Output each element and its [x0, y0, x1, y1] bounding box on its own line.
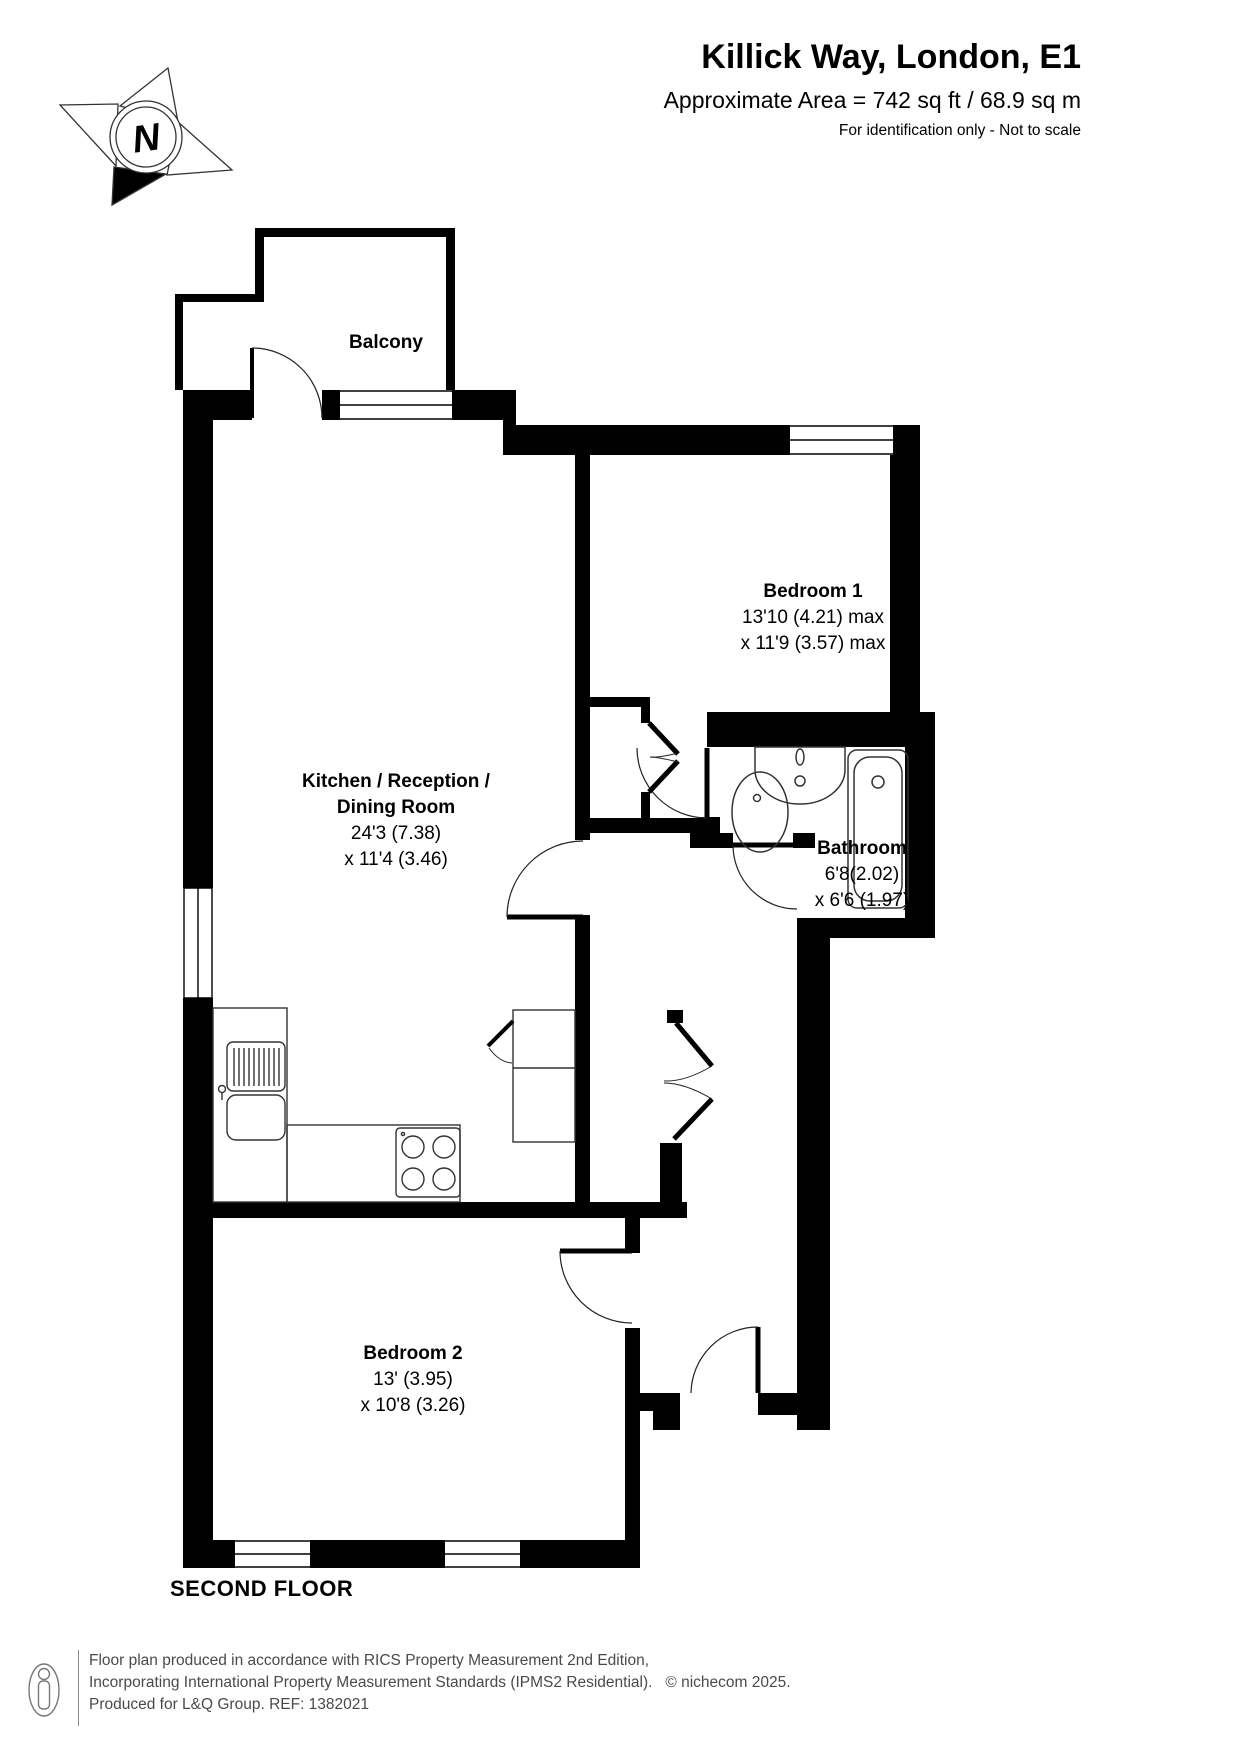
floor-plan: N: [0, 0, 1241, 1755]
bedroom2-window-left: [235, 1540, 310, 1568]
footer-line2: Incorporating International Property Mea…: [89, 1672, 791, 1694]
kitchen-label-line1: Kitchen / Reception /: [302, 771, 491, 792]
kitchen-fixtures: [213, 1008, 575, 1202]
bedroom2-dim2: x 10'8 (3.26): [360, 1395, 465, 1416]
footer-text: Floor plan produced in accordance with R…: [89, 1650, 791, 1716]
person-height-icon: [18, 1650, 68, 1730]
kitchen-counter-right: [488, 1010, 575, 1142]
bathroom-dim1: 6'8(2.02): [825, 864, 899, 885]
balcony-label: Balcony: [349, 332, 423, 353]
bedroom2-dim1: 13' (3.95): [373, 1369, 453, 1390]
sink-tap-icon: [796, 749, 804, 765]
kitchen-sink: [219, 1042, 286, 1140]
bedroom2-label: Bedroom 2: [363, 1343, 462, 1364]
footer-divider: [78, 1650, 79, 1726]
footer-line2-text: Incorporating International Property Mea…: [89, 1674, 652, 1691]
kitchen-side-window: [183, 888, 213, 998]
corridor-closet-bifold-door: [664, 1023, 712, 1139]
bedroom2-window-right: [445, 1540, 520, 1568]
kitchen-label-line2: Dining Room: [337, 797, 455, 818]
bathroom-sink: [755, 747, 845, 804]
bathroom-dim2: x 6'6 (1.97): [815, 890, 909, 911]
footer-line1: Floor plan produced in accordance with R…: [89, 1650, 791, 1672]
kitchen-hob: [396, 1128, 460, 1197]
bedroom1-window: [790, 425, 893, 455]
kitchen-dim1: 24'3 (7.38): [351, 823, 441, 844]
kitchen-door: [507, 841, 583, 917]
entrance-door: [691, 1327, 758, 1393]
footer-line3: Produced for L&Q Group. REF: 1382021: [89, 1694, 791, 1716]
bathroom-door: [733, 845, 797, 909]
compass-rose: N: [60, 68, 232, 205]
windows: [183, 390, 893, 1568]
toilet: [732, 772, 788, 852]
kitchen-window: [340, 390, 452, 420]
hall-closet-bifold-door: [649, 723, 678, 792]
kitchen-counter-bottom: [287, 1125, 460, 1202]
compass-west-point: [60, 104, 118, 166]
bedroom1-dim1: 13'10 (4.21) max: [742, 607, 884, 628]
bedroom1-dim2: x 11'9 (3.57) max: [741, 633, 886, 654]
bedroom2-door: [560, 1251, 632, 1323]
doors: [252, 348, 797, 1393]
bedroom1-label: Bedroom 1: [763, 581, 863, 602]
kitchen-dim2: x 11'4 (3.46): [344, 849, 448, 870]
bathroom-label: Bathroom: [817, 838, 907, 859]
kitchen-counter-left: [213, 1008, 287, 1202]
footer: Floor plan produced in accordance with R…: [18, 1650, 791, 1730]
balcony-door: [252, 348, 322, 418]
footer-copyright: © nichecom 2025.: [665, 1674, 790, 1691]
sink-tap-icon: [219, 1086, 226, 1093]
floor-label: SECOND FLOOR: [170, 1576, 353, 1602]
